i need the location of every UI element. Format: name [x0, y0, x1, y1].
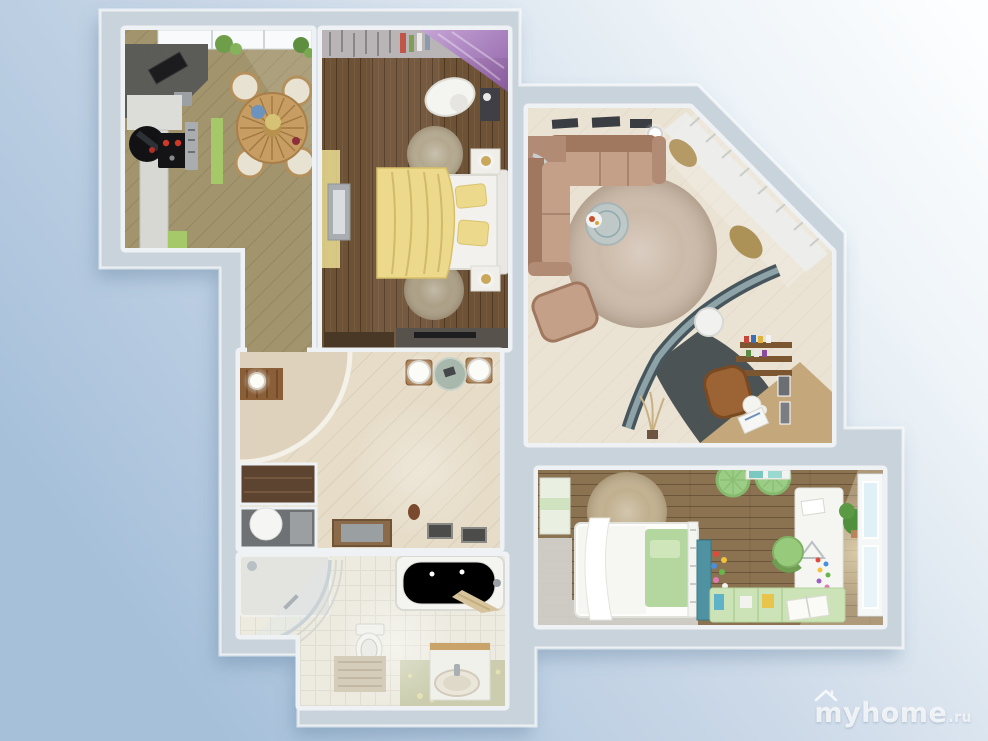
doormat-center — [341, 524, 383, 542]
floor-hatch — [428, 524, 452, 538]
sofa-back-left — [528, 158, 544, 268]
cubby-bin — [768, 471, 782, 478]
watermark-tld: .ru — [948, 710, 972, 726]
floor-vase — [408, 504, 420, 520]
food — [595, 221, 599, 225]
photo-frame — [780, 402, 790, 424]
armchair-seat — [450, 94, 468, 112]
table-lamp — [481, 274, 491, 284]
storage-item — [714, 594, 724, 610]
red-dish — [292, 137, 300, 145]
green-cabinet-front — [211, 118, 223, 184]
plant-pot — [647, 430, 658, 439]
tub-jet — [460, 570, 465, 575]
hanging-clothes — [400, 33, 406, 53]
sofa-armrest — [528, 262, 572, 276]
kitchen-cabinet — [127, 95, 182, 130]
crib-pillow — [650, 540, 680, 558]
floorplan-scene: myhome .ru — [0, 0, 988, 741]
blue-plate — [251, 105, 265, 119]
burner — [169, 155, 174, 160]
drawing-paper — [801, 499, 825, 516]
shower-head — [247, 561, 257, 571]
food — [589, 216, 595, 222]
hanging-clothes — [425, 34, 430, 50]
watermark-name: myhome — [814, 698, 947, 729]
floor-lamp — [468, 359, 490, 381]
wall-speaker — [592, 116, 620, 127]
sofa-armrest — [652, 136, 666, 184]
watermark: myhome .ru — [814, 698, 972, 729]
utility-box — [290, 512, 312, 544]
side-cabinet — [480, 88, 500, 121]
vanity-wood-top — [430, 643, 490, 650]
tv — [414, 332, 476, 338]
centerpiece — [265, 114, 281, 130]
hanging-clothes — [409, 35, 414, 52]
white-stool — [695, 308, 723, 336]
cubby-bin — [749, 471, 763, 478]
pillow — [457, 220, 489, 247]
tub-jet — [430, 572, 435, 577]
wine-bottle-cap — [149, 147, 155, 153]
photo-frame — [778, 376, 790, 396]
bed-headboard — [497, 170, 508, 274]
laundry-basket — [250, 508, 282, 540]
burner — [163, 140, 169, 146]
window-pane — [863, 482, 878, 538]
cabinet-decor — [483, 93, 491, 101]
potted-plant — [839, 503, 855, 519]
teal-cabinet — [697, 540, 711, 620]
mirror-glass — [333, 190, 345, 234]
table-lamp — [481, 156, 491, 166]
cooktop — [158, 133, 187, 168]
pouf-seams — [720, 466, 746, 494]
burner — [175, 140, 181, 146]
floor-lamp — [408, 361, 430, 383]
shelf-green-accent — [540, 498, 570, 510]
window-plant — [230, 43, 242, 55]
sink-faucet — [454, 664, 460, 676]
floorplan-canvas — [0, 0, 988, 741]
hanging-clothes — [417, 33, 422, 51]
floor-hatch — [462, 528, 486, 542]
storage-item — [740, 596, 752, 608]
bathtub-basin — [403, 562, 495, 604]
storage-item — [762, 594, 774, 608]
pillow — [455, 183, 487, 208]
open-closet — [240, 464, 316, 504]
wall-speaker — [552, 118, 579, 129]
tub-faucet — [493, 579, 501, 587]
window-pane — [863, 546, 878, 608]
house-roof-icon — [814, 688, 838, 702]
sink-basin — [443, 675, 471, 691]
entry-lamp — [249, 373, 265, 389]
low-wardrobe — [324, 332, 394, 348]
